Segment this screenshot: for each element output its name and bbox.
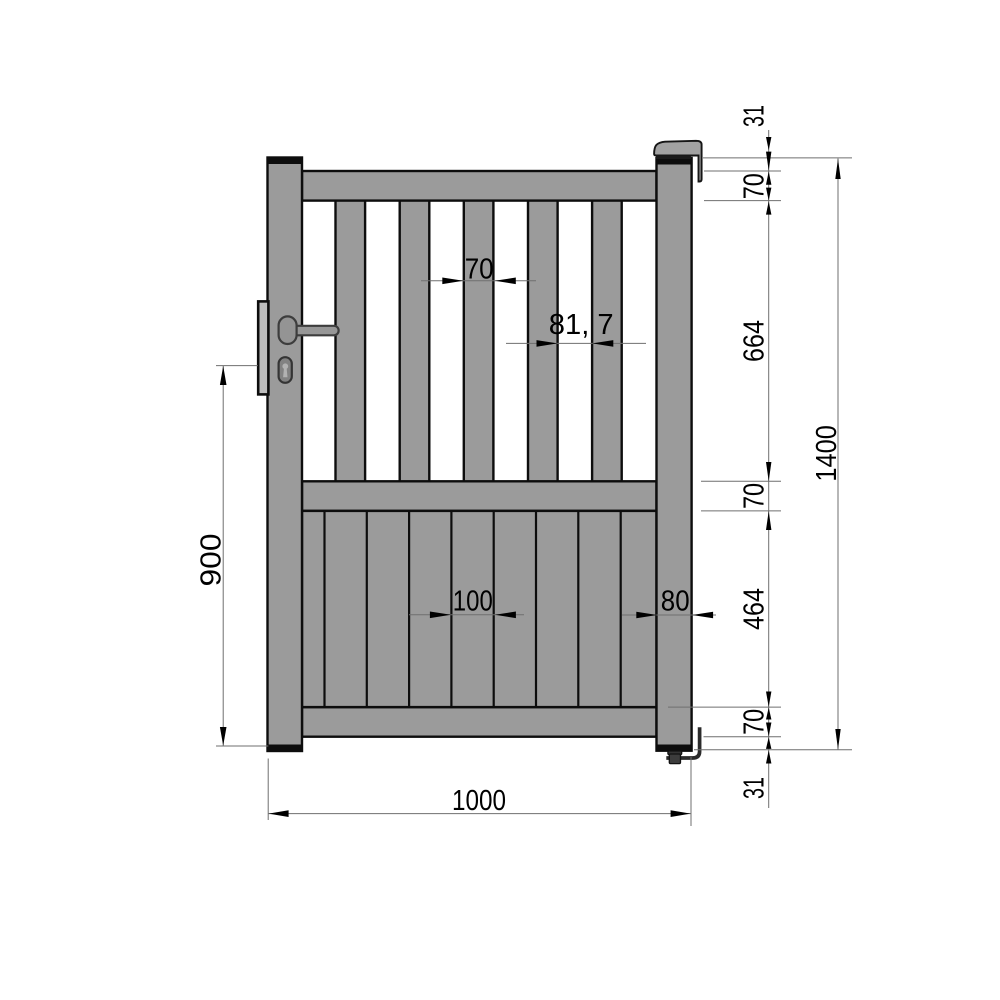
- svg-text:70: 70: [739, 483, 771, 509]
- svg-text:1400: 1400: [811, 425, 843, 482]
- svg-text:1000: 1000: [452, 785, 506, 817]
- svg-text:31: 31: [739, 777, 771, 799]
- svg-text:70: 70: [465, 253, 494, 285]
- svg-text:900: 900: [196, 534, 228, 587]
- svg-text:70: 70: [739, 709, 771, 735]
- svg-text:70: 70: [739, 173, 771, 199]
- svg-text:100: 100: [453, 585, 493, 617]
- svg-text:31: 31: [739, 105, 771, 127]
- svg-text:80: 80: [661, 585, 690, 617]
- svg-text:664: 664: [739, 320, 771, 362]
- svg-text:81, 7: 81, 7: [549, 309, 614, 341]
- svg-text:464: 464: [739, 588, 771, 630]
